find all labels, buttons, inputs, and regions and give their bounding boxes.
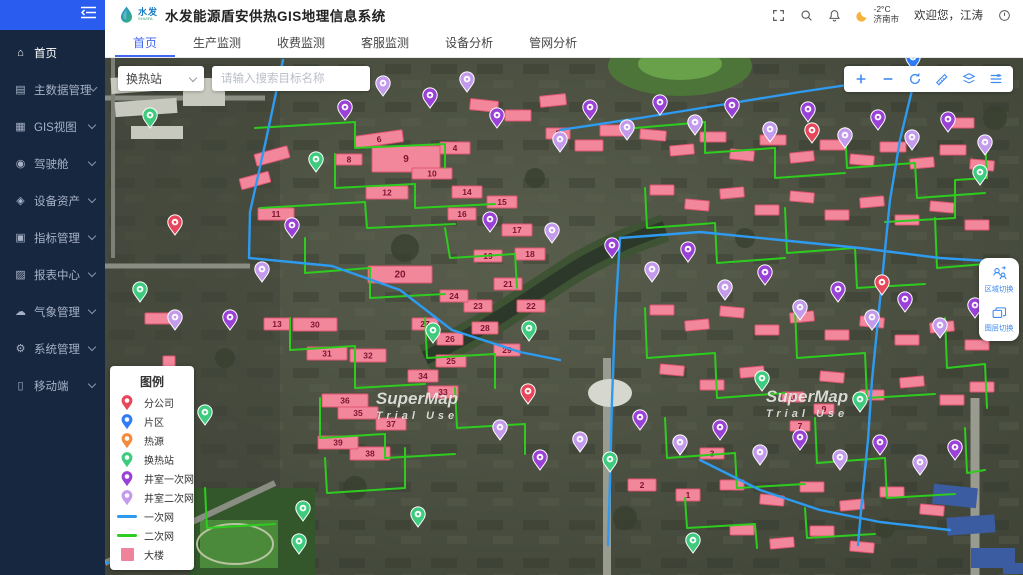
layers-icon[interactable] [962, 72, 976, 86]
building-footprint[interactable] [700, 380, 724, 390]
svg-text:18: 18 [525, 249, 535, 259]
building-footprint[interactable] [860, 196, 885, 208]
building-footprint[interactable]: 22 [517, 300, 545, 312]
map-image: 6498101251114151617181920212223242526272… [105, 58, 1023, 575]
gis-icon: ▦ [13, 120, 28, 133]
building-footprint[interactable] [970, 382, 994, 392]
sidebar-item-equipment-assets[interactable]: ◈设备资产 [0, 182, 105, 219]
report-icon: ▨ [13, 268, 28, 281]
legend-item: 二次网 [110, 526, 194, 545]
building-footprint[interactable] [940, 395, 964, 405]
building-footprint[interactable] [825, 330, 849, 340]
svg-text:26: 26 [445, 334, 455, 344]
building-footprint[interactable] [660, 364, 685, 376]
building-footprint[interactable]: 24 [440, 290, 468, 302]
building-footprint[interactable]: 34 [408, 370, 438, 382]
svg-text:20: 20 [394, 270, 406, 281]
svg-text:38: 38 [365, 449, 375, 459]
svg-text:34: 34 [418, 371, 428, 381]
legend-swatch-pin [117, 413, 137, 430]
building-footprint[interactable] [720, 187, 745, 199]
map-legend: 图例 分公司片区热源换热站井室一次网井室二次网一次网二次网大楼 [110, 366, 194, 570]
building-footprint[interactable]: 2 [628, 479, 656, 491]
tab-bar: 首页生产监测收费监测客服监测设备分析管网分析 [105, 30, 1023, 58]
building-footprint[interactable] [685, 319, 710, 331]
chevron-down-icon [189, 73, 197, 81]
collapse-menu-icon [81, 6, 96, 24]
building-footprint[interactable] [755, 205, 779, 215]
building-footprint[interactable] [965, 220, 989, 230]
stack-icon [991, 304, 1008, 321]
map-canvas[interactable]: 6498101251114151617181920212223242526272… [105, 58, 1023, 575]
sidebar-item-label: 系统管理 [34, 341, 80, 357]
logout-icon[interactable] [998, 9, 1011, 22]
legend-item: 换热站 [110, 450, 194, 469]
app-logo-icon [118, 5, 135, 25]
svg-text:22: 22 [526, 301, 536, 311]
supermap-watermark: SuperMapTrial Use [766, 387, 848, 420]
building-footprint[interactable] [650, 305, 674, 315]
building-footprint[interactable] [895, 335, 919, 345]
legend-swatch-pin [117, 432, 137, 449]
svg-text:10: 10 [427, 169, 437, 179]
building-footprint[interactable] [790, 191, 815, 203]
svg-text:SuperMap: SuperMap [376, 389, 458, 408]
sidebar-item-home[interactable]: ⌂首页 [0, 34, 105, 71]
legend-title: 图例 [110, 373, 194, 390]
sidebar-menu: ⌂首页▤主数据管理▦GIS视图◉驾驶舱◈设备资产▣指标管理▨报表中心☁气象管理⚙… [0, 30, 105, 404]
legend-label: 热源 [144, 433, 164, 448]
search-input[interactable] [219, 72, 377, 86]
svg-text:32: 32 [363, 351, 373, 361]
svg-text:15: 15 [497, 197, 507, 207]
building-footprint[interactable] [850, 154, 875, 166]
legend-label: 一次网 [144, 509, 174, 524]
svg-text:4: 4 [453, 143, 458, 153]
sidebar-collapse-button[interactable] [0, 0, 105, 30]
temperature-city: -2°C 济南市 [873, 5, 899, 25]
building-footprint[interactable] [505, 110, 531, 121]
building-footprint[interactable]: 16 [448, 208, 476, 220]
legend-label: 换热站 [144, 452, 174, 467]
svg-text:21: 21 [503, 279, 513, 289]
building-footprint[interactable] [730, 525, 754, 535]
chevron-down-icon [88, 195, 96, 203]
legend-label: 井室一次网 [144, 471, 194, 486]
chevron-down-icon [88, 232, 96, 240]
building-footprint[interactable]: 8 [336, 154, 362, 165]
brand: 水发 SHUIFA 水发能源盾安供热GIS地理信息系统 [105, 5, 386, 25]
reset-view-icon[interactable] [908, 72, 922, 86]
legend-swatch-line [117, 534, 137, 537]
search-input-wrap [212, 66, 370, 91]
home-icon: ⌂ [13, 47, 28, 59]
svg-text:Trial Use: Trial Use [376, 410, 458, 422]
main-area: 水发 SHUIFA 水发能源盾安供热GIS地理信息系统 -2°C 济南市 欢迎您… [105, 0, 1023, 575]
svg-text:30: 30 [310, 320, 320, 330]
system-icon: ⚙ [13, 342, 28, 355]
building-footprint[interactable] [965, 340, 989, 350]
building-footprint[interactable]: 1 [676, 489, 700, 501]
building-footprint[interactable]: 17 [502, 224, 532, 236]
svg-text:9: 9 [403, 154, 409, 165]
building-footprint[interactable] [650, 185, 674, 195]
map-controls [844, 66, 1013, 92]
building-footprint[interactable] [720, 306, 745, 318]
svg-text:1: 1 [686, 490, 691, 500]
tab-home[interactable]: 首页 [115, 30, 175, 57]
chevron-down-icon [88, 380, 96, 388]
zoom-in-icon[interactable] [854, 72, 868, 86]
sidebar-item-weather-mgmt[interactable]: ☁气象管理 [0, 293, 105, 330]
db-icon: ▤ [13, 83, 28, 96]
legend-label: 二次网 [144, 528, 174, 543]
sidebar-item-gis-view[interactable]: ▦GIS视图 [0, 108, 105, 145]
building-footprint[interactable] [539, 94, 566, 108]
building-footprint[interactable] [700, 132, 726, 142]
weather-widget: -2°C 济南市 [856, 5, 899, 25]
zoom-out-icon[interactable] [881, 72, 895, 86]
building-footprint[interactable] [145, 313, 171, 324]
building-footprint[interactable] [880, 487, 904, 497]
header-actions: -2°C 济南市 欢迎您，江涛 [772, 5, 1023, 25]
legend-swatch-pin [117, 470, 137, 487]
layer-switch-button[interactable]: 图层切换 [980, 304, 1018, 334]
sidebar-item-indicator-mgmt[interactable]: ▣指标管理 [0, 219, 105, 256]
page-title: 水发能源盾安供热GIS地理信息系统 [165, 5, 386, 25]
sidebar-item-label: 报表中心 [34, 267, 80, 283]
building-footprint[interactable] [810, 526, 834, 536]
building-footprint[interactable]: 36 [322, 394, 368, 407]
building-footprint[interactable]: 18 [515, 248, 545, 260]
svg-text:35: 35 [353, 408, 363, 418]
chevron-down-icon [88, 306, 96, 314]
legend-item: 井室一次网 [110, 469, 194, 488]
legend-item: 大楼 [110, 545, 194, 564]
app-header: 水发 SHUIFA 水发能源盾安供热GIS地理信息系统 -2°C 济南市 欢迎您… [105, 0, 1023, 30]
building-footprint[interactable]: 10 [412, 168, 452, 179]
building-footprint[interactable] [930, 201, 955, 213]
app-root: ⌂首页▤主数据管理▦GIS视图◉驾驶舱◈设备资产▣指标管理▨报表中心☁气象管理⚙… [0, 0, 1023, 575]
chevron-down-icon [88, 121, 96, 129]
notification-bell-icon[interactable] [828, 9, 841, 22]
sidebar-item-label: 移动端 [34, 378, 69, 394]
building-footprint[interactable] [850, 541, 875, 553]
sidebar-item-mobile[interactable]: ▯移动端 [0, 367, 105, 404]
sidebar-item-label: 设备资产 [34, 193, 80, 209]
legend-swatch-line [117, 515, 137, 518]
legend-swatch-pin [117, 451, 137, 468]
legend-swatch-square [117, 548, 137, 561]
tab-equipment-analysis[interactable]: 设备分析 [427, 30, 511, 57]
legend-items: 分公司片区热源换热站井室一次网井室二次网一次网二次网大楼 [110, 393, 194, 564]
building-footprint[interactable]: 30 [293, 318, 337, 331]
legend-swatch-pin [117, 394, 137, 411]
welcome-text: 欢迎您，江涛 [914, 7, 983, 23]
weather-icon: ☁ [13, 305, 28, 318]
map-search-bar: 换热站 [118, 66, 370, 91]
legend-item: 分公司 [110, 393, 194, 412]
svg-text:23: 23 [473, 301, 483, 311]
building-footprint[interactable]: 15 [487, 196, 517, 208]
building-footprint[interactable] [790, 151, 815, 163]
svg-text:2: 2 [640, 480, 645, 490]
city: 济南市 [873, 15, 899, 25]
svg-text:28: 28 [480, 323, 490, 333]
building-footprint[interactable] [825, 210, 849, 220]
region-icon [991, 265, 1008, 282]
svg-text:8: 8 [347, 155, 352, 165]
building-footprint[interactable] [640, 129, 667, 141]
chevron-down-icon [88, 269, 96, 277]
svg-text:Trial Use: Trial Use [766, 408, 848, 420]
measure-icon[interactable] [935, 72, 949, 86]
cockpit-icon: ◉ [13, 157, 28, 170]
legend-item: 井室二次网 [110, 488, 194, 507]
logo-text: 水发 SHUIFA [138, 8, 158, 22]
legend-item: 一次网 [110, 507, 194, 526]
search-icon[interactable] [800, 9, 813, 22]
sidebar-item-label: 首页 [34, 45, 57, 61]
building-footprint[interactable] [900, 376, 925, 388]
layer-settings-icon[interactable] [989, 72, 1003, 86]
building-footprint[interactable] [940, 145, 966, 155]
legend-item: 热源 [110, 431, 194, 450]
building-footprint[interactable] [770, 537, 795, 549]
building-footprint[interactable]: 26 [437, 333, 463, 345]
building-footprint[interactable] [685, 199, 710, 211]
moon-icon [856, 9, 869, 22]
indicator-icon: ▣ [13, 231, 28, 244]
fullscreen-icon[interactable] [772, 9, 785, 22]
svg-text:31: 31 [322, 349, 332, 359]
mobile-icon: ▯ [13, 379, 28, 392]
legend-label: 片区 [144, 414, 164, 429]
sidebar-item-label: GIS视图 [34, 119, 77, 135]
legend-label: 分公司 [144, 395, 174, 410]
sidebar-item-master-data[interactable]: ▤主数据管理 [0, 71, 105, 108]
svg-text:SuperMap: SuperMap [766, 387, 848, 406]
svg-text:24: 24 [449, 291, 459, 301]
building-footprint[interactable]: 35 [338, 407, 378, 419]
svg-text:12: 12 [382, 188, 392, 198]
sidebar-item-system-mgmt[interactable]: ⚙系统管理 [0, 330, 105, 367]
legend-swatch-pin [117, 489, 137, 506]
building-footprint[interactable] [575, 140, 603, 151]
svg-text:39: 39 [333, 438, 343, 448]
building-footprint[interactable] [755, 325, 779, 335]
tab-fee-monitor[interactable]: 收费监测 [259, 30, 343, 57]
sidebar-item-label: 驾驶舱 [34, 156, 69, 172]
sidebar-item-label: 主数据管理 [34, 82, 92, 98]
chevron-down-icon [88, 343, 96, 351]
sidebar-item-label: 气象管理 [34, 304, 80, 320]
building-footprint[interactable]: 20 [368, 266, 432, 283]
sidebar-item-report-center[interactable]: ▨报表中心 [0, 256, 105, 293]
tab-production-monitor[interactable]: 生产监测 [175, 30, 259, 57]
sidebar: ⌂首页▤主数据管理▦GIS视图◉驾驶舱◈设备资产▣指标管理▨报表中心☁气象管理⚙… [0, 0, 105, 575]
tab-service-monitor[interactable]: 客服监测 [343, 30, 427, 57]
map-side-buttons: 区域切换图层切换 [979, 258, 1019, 341]
building-footprint[interactable] [920, 504, 945, 516]
asset-icon: ◈ [13, 194, 28, 207]
svg-text:13: 13 [272, 319, 282, 329]
building-footprint[interactable] [670, 144, 695, 156]
region-switch-button[interactable]: 区域切换 [980, 265, 1018, 295]
building-footprint[interactable] [820, 371, 845, 383]
building-footprint[interactable] [880, 142, 906, 152]
svg-text:16: 16 [457, 209, 467, 219]
side-button-label: 区域切换 [985, 285, 1014, 295]
svg-text:14: 14 [462, 187, 472, 197]
sidebar-item-cockpit[interactable]: ◉驾驶舱 [0, 145, 105, 182]
building-footprint[interactable]: 14 [452, 186, 482, 198]
search-category-value: 换热站 [126, 70, 162, 87]
side-button-label: 图层切换 [985, 324, 1014, 334]
legend-label: 大楼 [144, 547, 164, 562]
supermap-watermark: SuperMapTrial Use [376, 389, 458, 422]
svg-text:17: 17 [512, 225, 522, 235]
search-category-select[interactable]: 换热站 [118, 66, 204, 91]
building-footprint[interactable]: 12 [366, 186, 408, 199]
svg-text:36: 36 [340, 396, 350, 406]
building-footprint[interactable]: 28 [472, 322, 498, 334]
sidebar-item-label: 指标管理 [34, 230, 80, 246]
tab-network-analysis[interactable]: 管网分析 [511, 30, 595, 57]
svg-text:11: 11 [272, 209, 281, 219]
building-footprint[interactable]: 13 [264, 318, 290, 330]
chevron-down-icon [88, 158, 96, 166]
legend-item: 片区 [110, 412, 194, 431]
legend-label: 井室二次网 [144, 490, 194, 505]
logo-en: SHUIFA [138, 17, 156, 21]
